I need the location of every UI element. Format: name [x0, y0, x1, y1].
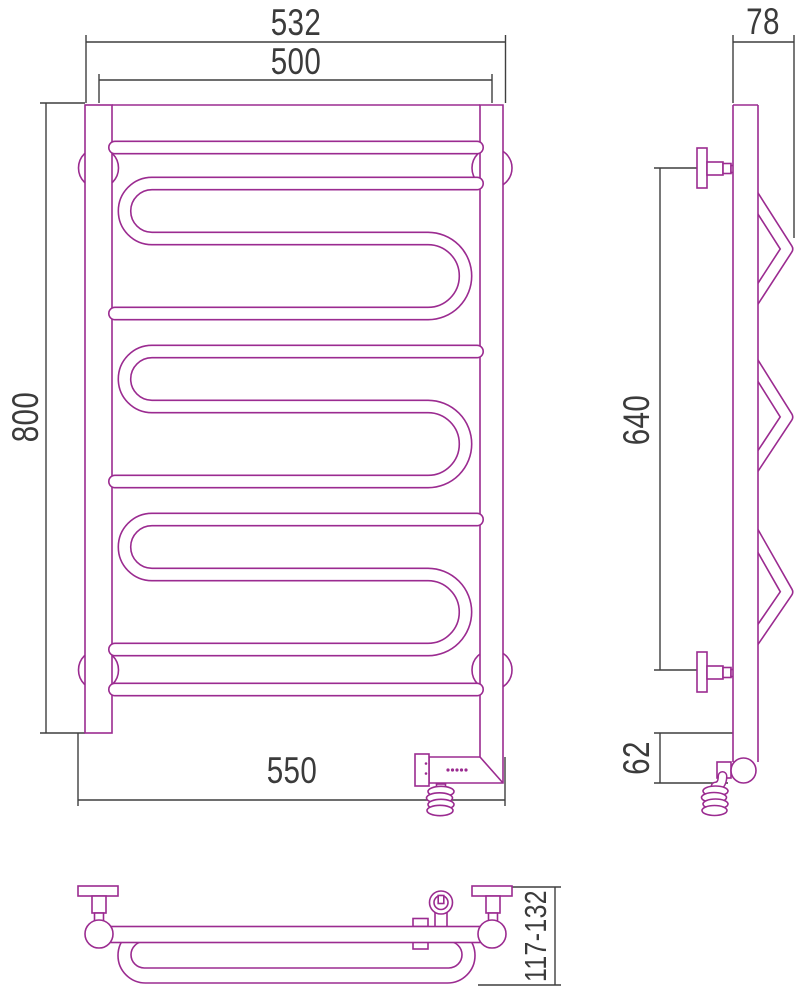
power-cord-coil-side	[702, 786, 729, 816]
dim-label-bottom-width: 550	[256, 754, 328, 788]
drawing-linework	[0, 0, 810, 1000]
drawing-canvas: 532 500 800 550 78 640 62 117-132	[0, 0, 810, 1000]
side-bottom-connection	[702, 758, 757, 816]
dim-label-rail-width: 500	[260, 45, 332, 79]
bottom-view	[78, 886, 512, 983]
bottom-bracket-right	[472, 886, 512, 922]
wall-bracket-top	[697, 148, 735, 188]
ball-cap-left	[85, 920, 113, 948]
ball-cap-right	[478, 920, 506, 948]
dim-label-overall-width: 532	[260, 6, 332, 40]
dim-label-depth: 78	[727, 5, 799, 39]
dim-label-wall-clearance: 117-132	[519, 888, 553, 984]
heater-box-cap	[415, 754, 429, 786]
left-post	[85, 105, 112, 733]
dim-label-height: 800	[9, 381, 43, 453]
side-view	[697, 105, 787, 816]
bottom-bracket-left	[78, 886, 118, 922]
heater-tab-top	[413, 919, 428, 927]
bottom-tube-end	[731, 758, 756, 783]
switch-knob	[430, 891, 453, 914]
serpentine-tubes	[115, 148, 477, 690]
dim-label-bottom-offset: 62	[620, 722, 654, 794]
front-view	[79, 105, 513, 816]
side-post	[733, 105, 758, 762]
wall-bracket-bottom	[697, 652, 735, 692]
bottom-tube	[99, 927, 492, 943]
power-cord-coil-front	[427, 784, 455, 816]
dim-label-bracket-spacing: 640	[620, 384, 654, 456]
